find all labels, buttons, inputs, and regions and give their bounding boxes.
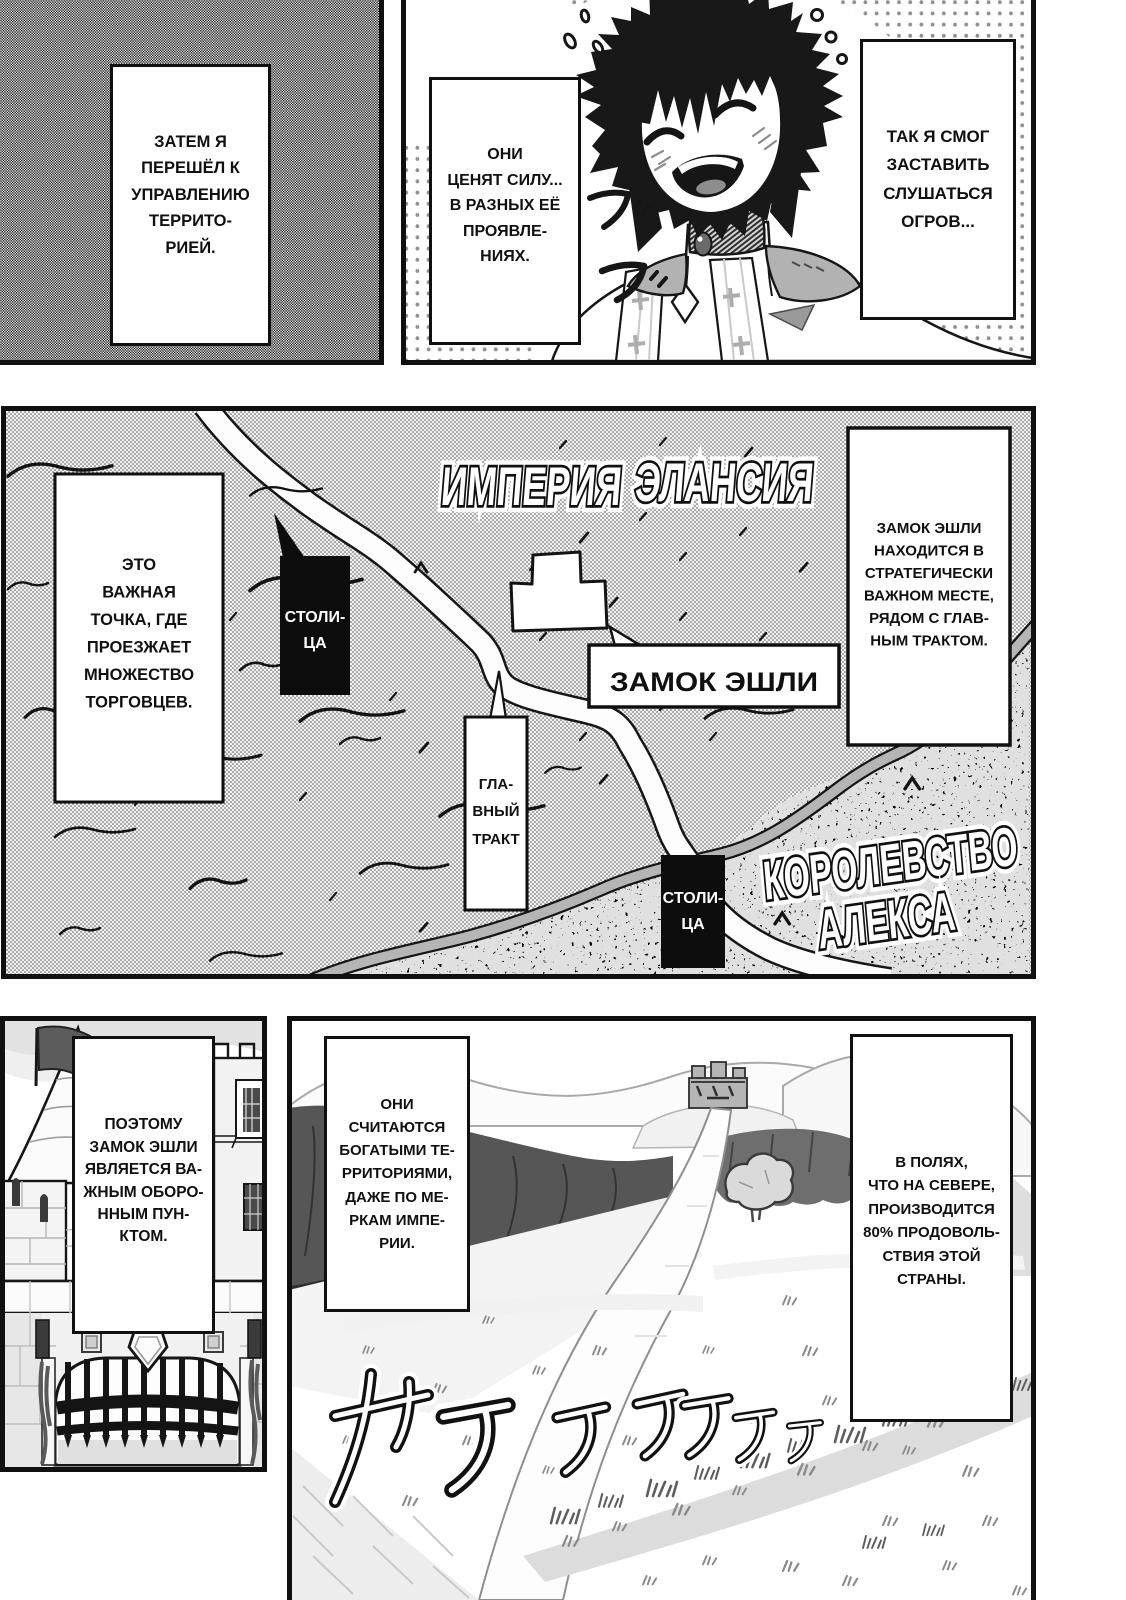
svg-text:ЦА: ЦА	[303, 635, 327, 652]
svg-text:ВАЖНАЯ: ВАЖНАЯ	[102, 584, 176, 602]
svg-text:ЗАМОК ЭШЛИ: ЗАМОК ЭШЛИ	[877, 520, 982, 537]
svg-text:ТОЧКА, ГДЕ: ТОЧКА, ГДЕ	[91, 611, 188, 629]
svg-text:НЫМ ТРАКТОМ.: НЫМ ТРАКТОМ.	[870, 633, 988, 650]
svg-text:ТОРГОВЦЕВ.: ТОРГОВЦЕВ.	[86, 694, 193, 712]
svg-text:ЗАМОК ЭШЛИ: ЗАМОК ЭШЛИ	[610, 667, 818, 697]
svg-text:ПРОЕЗЖАЕТ: ПРОЕЗЖАЕТ	[87, 639, 191, 657]
svg-text:НАХОДИТСЯ В: НАХОДИТСЯ В	[874, 543, 984, 560]
svg-text:ЭТО: ЭТО	[122, 556, 156, 574]
svg-text:ВНЫЙ: ВНЫЙ	[472, 802, 519, 820]
svg-text:ТРАКТ: ТРАКТ	[472, 831, 519, 848]
svg-text:МНОЖЕСТВО: МНОЖЕСТВО	[84, 666, 194, 684]
svg-text:ЭЛАНСИЯ: ЭЛАНСИЯ	[633, 451, 816, 512]
svg-text:СТОЛИ-: СТОЛИ-	[663, 890, 724, 907]
svg-text:СТОЛИ-: СТОЛИ-	[285, 609, 346, 626]
svg-text:ВАЖНОМ МЕСТЕ,: ВАЖНОМ МЕСТЕ,	[864, 588, 994, 605]
svg-text:ИМПЕРИЯ: ИМПЕРИЯ	[439, 455, 624, 516]
svg-text:РЯДОМ С ГЛАВ-: РЯДОМ С ГЛАВ-	[869, 610, 989, 627]
svg-text:ЦА: ЦА	[681, 916, 705, 933]
svg-text:СТРАТЕГИЧЕСКИ: СТРАТЕГИЧЕСКИ	[865, 565, 993, 582]
svg-text:ГЛА-: ГЛА-	[479, 776, 513, 793]
